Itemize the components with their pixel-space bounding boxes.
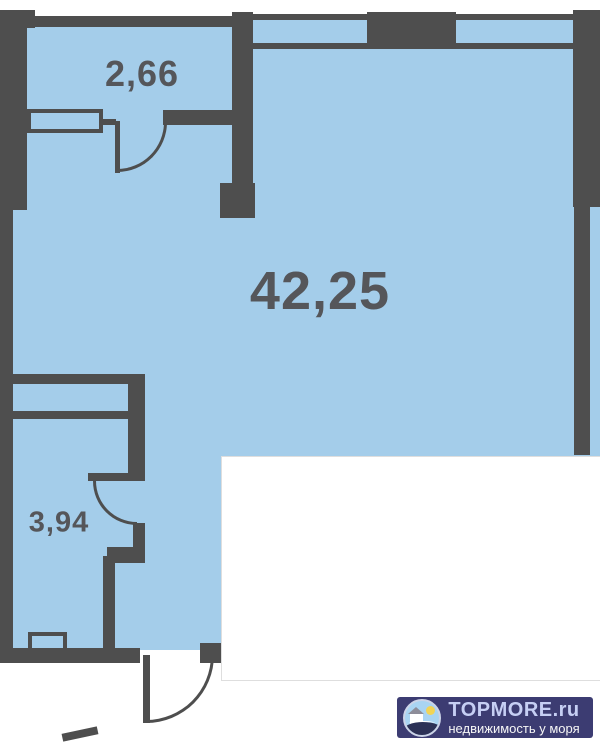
wall-left-upper [0,10,27,210]
area-label-bathroom: 3,94 [29,507,89,540]
wall-bottom [0,648,140,663]
wall-right-lower [574,207,590,455]
neighbor-door-fragment [62,726,99,741]
bath-door-leaf [88,473,145,481]
blank-cover-rectangle [221,456,600,681]
topmore-watermark[interactable]: TOPMORE.ru недвижимость у моря [397,697,593,738]
wall-left-lower [0,210,13,663]
wall-hall-right [232,12,253,185]
logo-text-block: TOPMORE.ru недвижимость у моря [441,699,587,736]
shaft-top-bar [9,374,145,384]
wall-hall-right-pier [220,183,255,218]
shaft-bottom-bar [9,411,137,419]
wave-line [409,721,435,725]
wall-top-band [0,16,233,27]
sun-icon [426,706,435,715]
window-pier [367,12,456,45]
area-label-entry-hall: 2,66 [105,53,179,95]
area-label-main-room: 42,25 [250,260,390,322]
house-roof-icon [408,707,424,714]
brand-name: TOPMORE.ru [448,700,579,721]
topmore-logo-icon [403,699,441,737]
hall-niche [27,109,103,133]
entry-door-arc [146,655,214,723]
bath-right-wall [128,374,145,480]
hall-partition-solid [163,110,233,125]
wall-right-upper [573,10,600,207]
floor-plan: 2,66 42,25 3,94 TOPMORE.ru недвижимость … [0,0,600,742]
floor-main [10,26,573,456]
brand-tagline: недвижимость у моря [448,722,579,736]
bath-wall-lower [103,556,115,663]
bottom-niche [28,632,67,652]
